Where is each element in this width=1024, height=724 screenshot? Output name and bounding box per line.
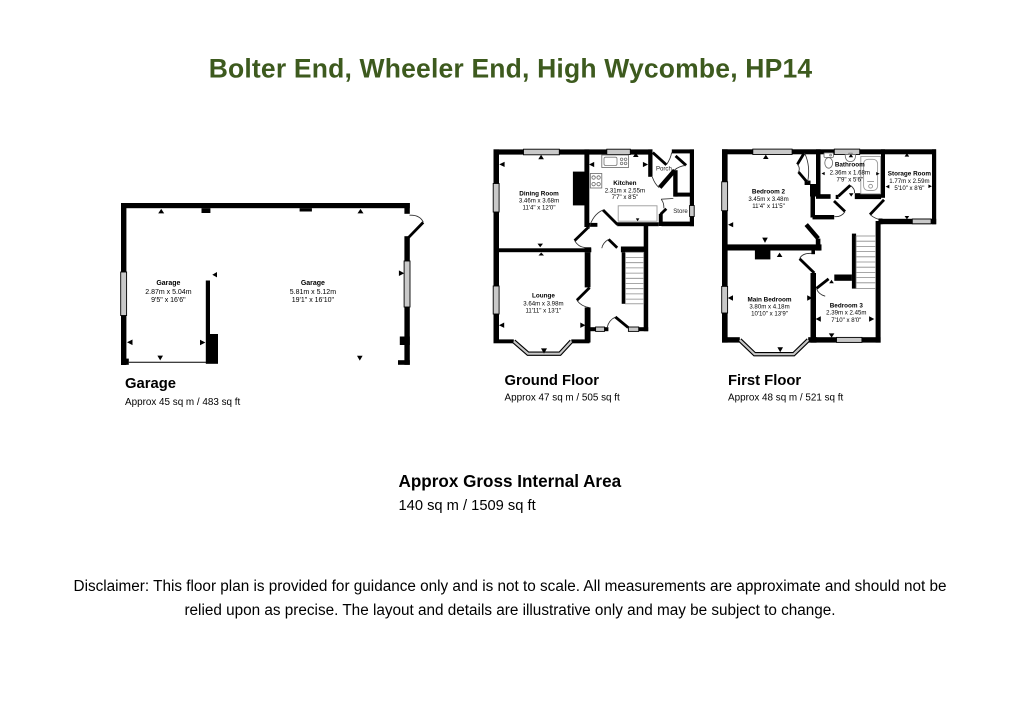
svg-text:7'7" x 8'5": 7'7" x 8'5" — [612, 194, 639, 201]
svg-text:11'11" x 13'1": 11'11" x 13'1" — [525, 308, 561, 315]
svg-text:140 sq m / 1509 sq ft: 140 sq m / 1509 sq ft — [399, 498, 536, 514]
svg-text:11'4" x 12'0": 11'4" x 12'0" — [523, 204, 556, 211]
svg-text:Approx 45 sq m / 483 sq ft: Approx 45 sq m / 483 sq ft — [125, 397, 241, 408]
svg-text:3.45m x 3.48m: 3.45m x 3.48m — [748, 196, 788, 203]
svg-text:Bolter End, Wheeler End, High: Bolter End, Wheeler End, High Wycombe, H… — [209, 54, 813, 84]
svg-text:11'4" x 11'5": 11'4" x 11'5" — [752, 203, 785, 210]
svg-text:Approx Gross Internal Area: Approx Gross Internal Area — [399, 472, 622, 491]
svg-text:Garage: Garage — [125, 376, 176, 392]
svg-text:Garage: Garage — [301, 280, 325, 287]
svg-text:Porch: Porch — [656, 166, 672, 173]
svg-text:Approx 47 sq m / 505 sq ft: Approx 47 sq m / 505 sq ft — [505, 393, 621, 404]
svg-text:Lounge: Lounge — [532, 293, 555, 300]
svg-text:Disclaimer: This floor plan is: Disclaimer: This floor plan is provided … — [74, 578, 947, 595]
svg-text:9'5" x 16'6": 9'5" x 16'6" — [151, 297, 186, 304]
svg-text:Store: Store — [673, 208, 688, 215]
svg-text:7'9" x 5'6": 7'9" x 5'6" — [836, 177, 863, 184]
svg-text:Main Bedroom: Main Bedroom — [747, 296, 791, 303]
svg-text:3.64m x 3.98m: 3.64m x 3.98m — [523, 300, 563, 307]
svg-text:Approx 48 sq m / 521 sq ft: Approx 48 sq m / 521 sq ft — [728, 393, 844, 404]
svg-text:2.87m x 5.04m: 2.87m x 5.04m — [145, 289, 191, 296]
svg-text:2.36m x 1.68m: 2.36m x 1.68m — [830, 170, 870, 177]
svg-text:Bedroom 2: Bedroom 2 — [752, 189, 786, 196]
svg-text:2.39m x 2.45m: 2.39m x 2.45m — [826, 310, 866, 317]
svg-text:1.77m x 2.59m: 1.77m x 2.59m — [889, 178, 929, 185]
svg-text:Storage Room: Storage Room — [888, 170, 932, 177]
svg-text:Bathroom: Bathroom — [835, 162, 865, 169]
svg-text:10'10" x 13'9": 10'10" x 13'9" — [751, 311, 788, 318]
svg-text:First Floor: First Floor — [728, 373, 801, 389]
svg-text:Kitchen: Kitchen — [613, 180, 636, 187]
svg-text:7'10" x 8'0": 7'10" x 8'0" — [831, 317, 861, 324]
svg-text:3.80m x 4.18m: 3.80m x 4.18m — [749, 303, 789, 310]
svg-text:Garage: Garage — [156, 280, 180, 287]
svg-text:relied upon as precise. The la: relied upon as precise. The layout and d… — [184, 602, 835, 619]
svg-text:Bedroom 3: Bedroom 3 — [830, 303, 864, 310]
svg-text:19'1" x 16'10": 19'1" x 16'10" — [292, 297, 335, 304]
svg-text:Ground Floor: Ground Floor — [505, 373, 600, 389]
svg-text:5'10" x 8'6": 5'10" x 8'6" — [894, 185, 924, 192]
svg-text:5.81m x 5.12m: 5.81m x 5.12m — [290, 289, 336, 296]
